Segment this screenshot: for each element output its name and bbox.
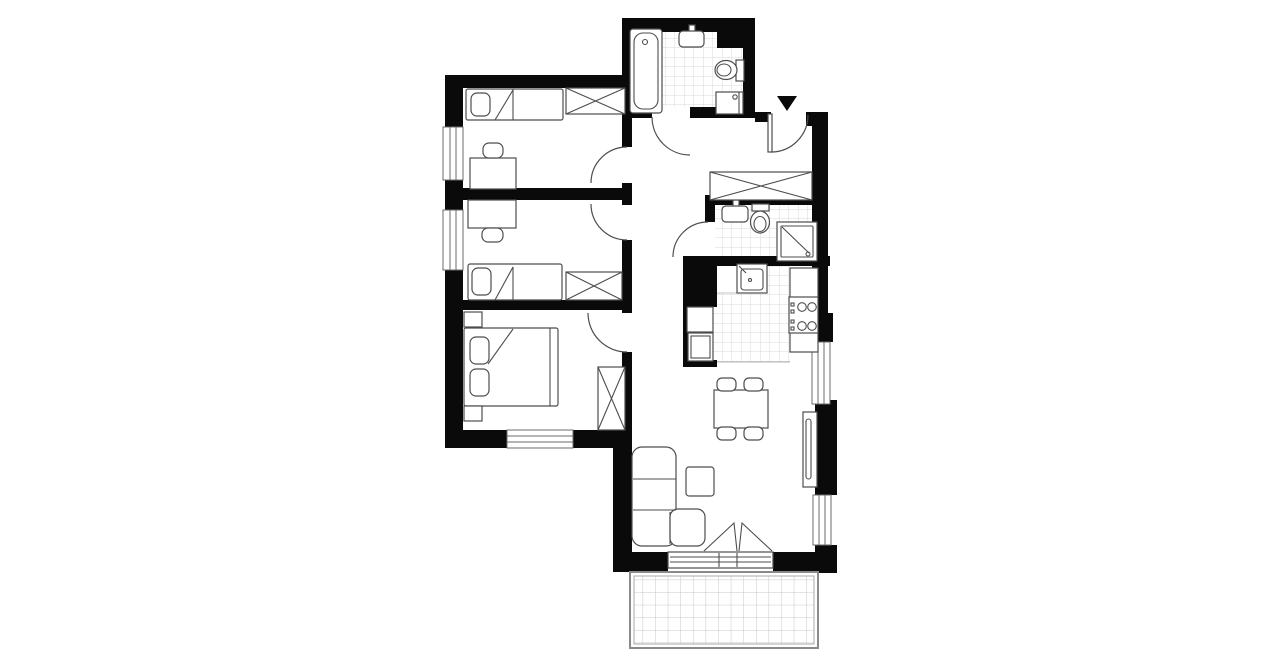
living-room-window <box>813 495 831 545</box>
bedroom-2 <box>468 200 622 300</box>
wall-bedroom1-right <box>622 118 632 147</box>
wall-living-left <box>613 443 632 555</box>
balcony <box>630 572 818 648</box>
washing-machine <box>716 92 743 114</box>
living-dining-room <box>632 378 817 568</box>
chair <box>717 427 736 440</box>
door-fold-triangle <box>739 523 772 551</box>
bedroom3-window <box>507 430 573 448</box>
entrance-door-arc <box>771 115 808 152</box>
bedroom-3 <box>464 312 625 430</box>
bedroom1-door-arc <box>591 147 627 183</box>
entrance-marker-icon <box>777 96 797 111</box>
wall-right-step <box>826 313 833 342</box>
cooktop <box>789 297 818 333</box>
bedroom-1 <box>466 88 625 189</box>
wall-bedroom2-right <box>622 240 632 300</box>
wall-bedroom2-right-stub <box>622 200 632 205</box>
bathroom2-door-arc <box>673 222 708 257</box>
desk <box>470 158 516 189</box>
wall-kitchen-shaft <box>688 260 717 307</box>
toilet <box>715 60 744 81</box>
entrance-door-leaf <box>768 114 772 152</box>
wall-bathroom1-corner <box>717 18 755 48</box>
entrance-door <box>768 96 808 152</box>
chair <box>744 378 763 391</box>
wall-bathroom1-right <box>743 44 755 118</box>
chair <box>744 427 763 440</box>
nightstand <box>464 312 482 327</box>
fridge <box>688 333 713 361</box>
chair <box>482 228 503 242</box>
pillow <box>472 268 491 295</box>
wardrobe <box>566 272 622 300</box>
dining-table <box>714 390 768 428</box>
floor-plan-canvas <box>0 0 1280 667</box>
nightstand <box>464 406 482 421</box>
door-fold-triangle <box>704 523 737 551</box>
floor-plan-drawing <box>0 0 1280 667</box>
bathtub <box>630 29 662 113</box>
pillow <box>470 369 489 396</box>
wall-bedroom1-right-stub <box>622 183 632 190</box>
wall-bottom-right-chunk <box>773 552 837 572</box>
wall-bedroom3-right-stub <box>622 310 632 313</box>
bedroom1-window <box>443 127 463 180</box>
coffee-table <box>686 467 714 496</box>
bedroom2-window <box>443 210 463 270</box>
chair <box>717 378 736 391</box>
wardrobe <box>566 88 625 114</box>
toilet <box>751 204 770 233</box>
hallway-wardrobe <box>710 172 812 200</box>
wall-top-bedroom1 <box>445 75 632 88</box>
wardrobe <box>598 367 625 430</box>
cistern <box>752 204 769 211</box>
desk <box>468 200 516 228</box>
wall-divider-bedroom1-2 <box>460 188 632 200</box>
bedroom2-door-arc <box>591 204 627 240</box>
kitchen-sink <box>737 264 767 293</box>
wall-right-middle <box>815 400 837 495</box>
balcony-deck <box>634 576 814 644</box>
shower-cabin <box>777 222 817 261</box>
radiator <box>803 412 817 487</box>
wall-divider-bedroom2-3 <box>460 300 632 310</box>
bathroom1-door-arc <box>652 117 690 155</box>
pillow <box>471 93 490 116</box>
pillow <box>470 337 489 364</box>
chair <box>483 143 503 158</box>
hallway <box>710 172 812 200</box>
tall-cabinet <box>687 307 713 332</box>
bedroom3-door-arc <box>588 313 627 352</box>
